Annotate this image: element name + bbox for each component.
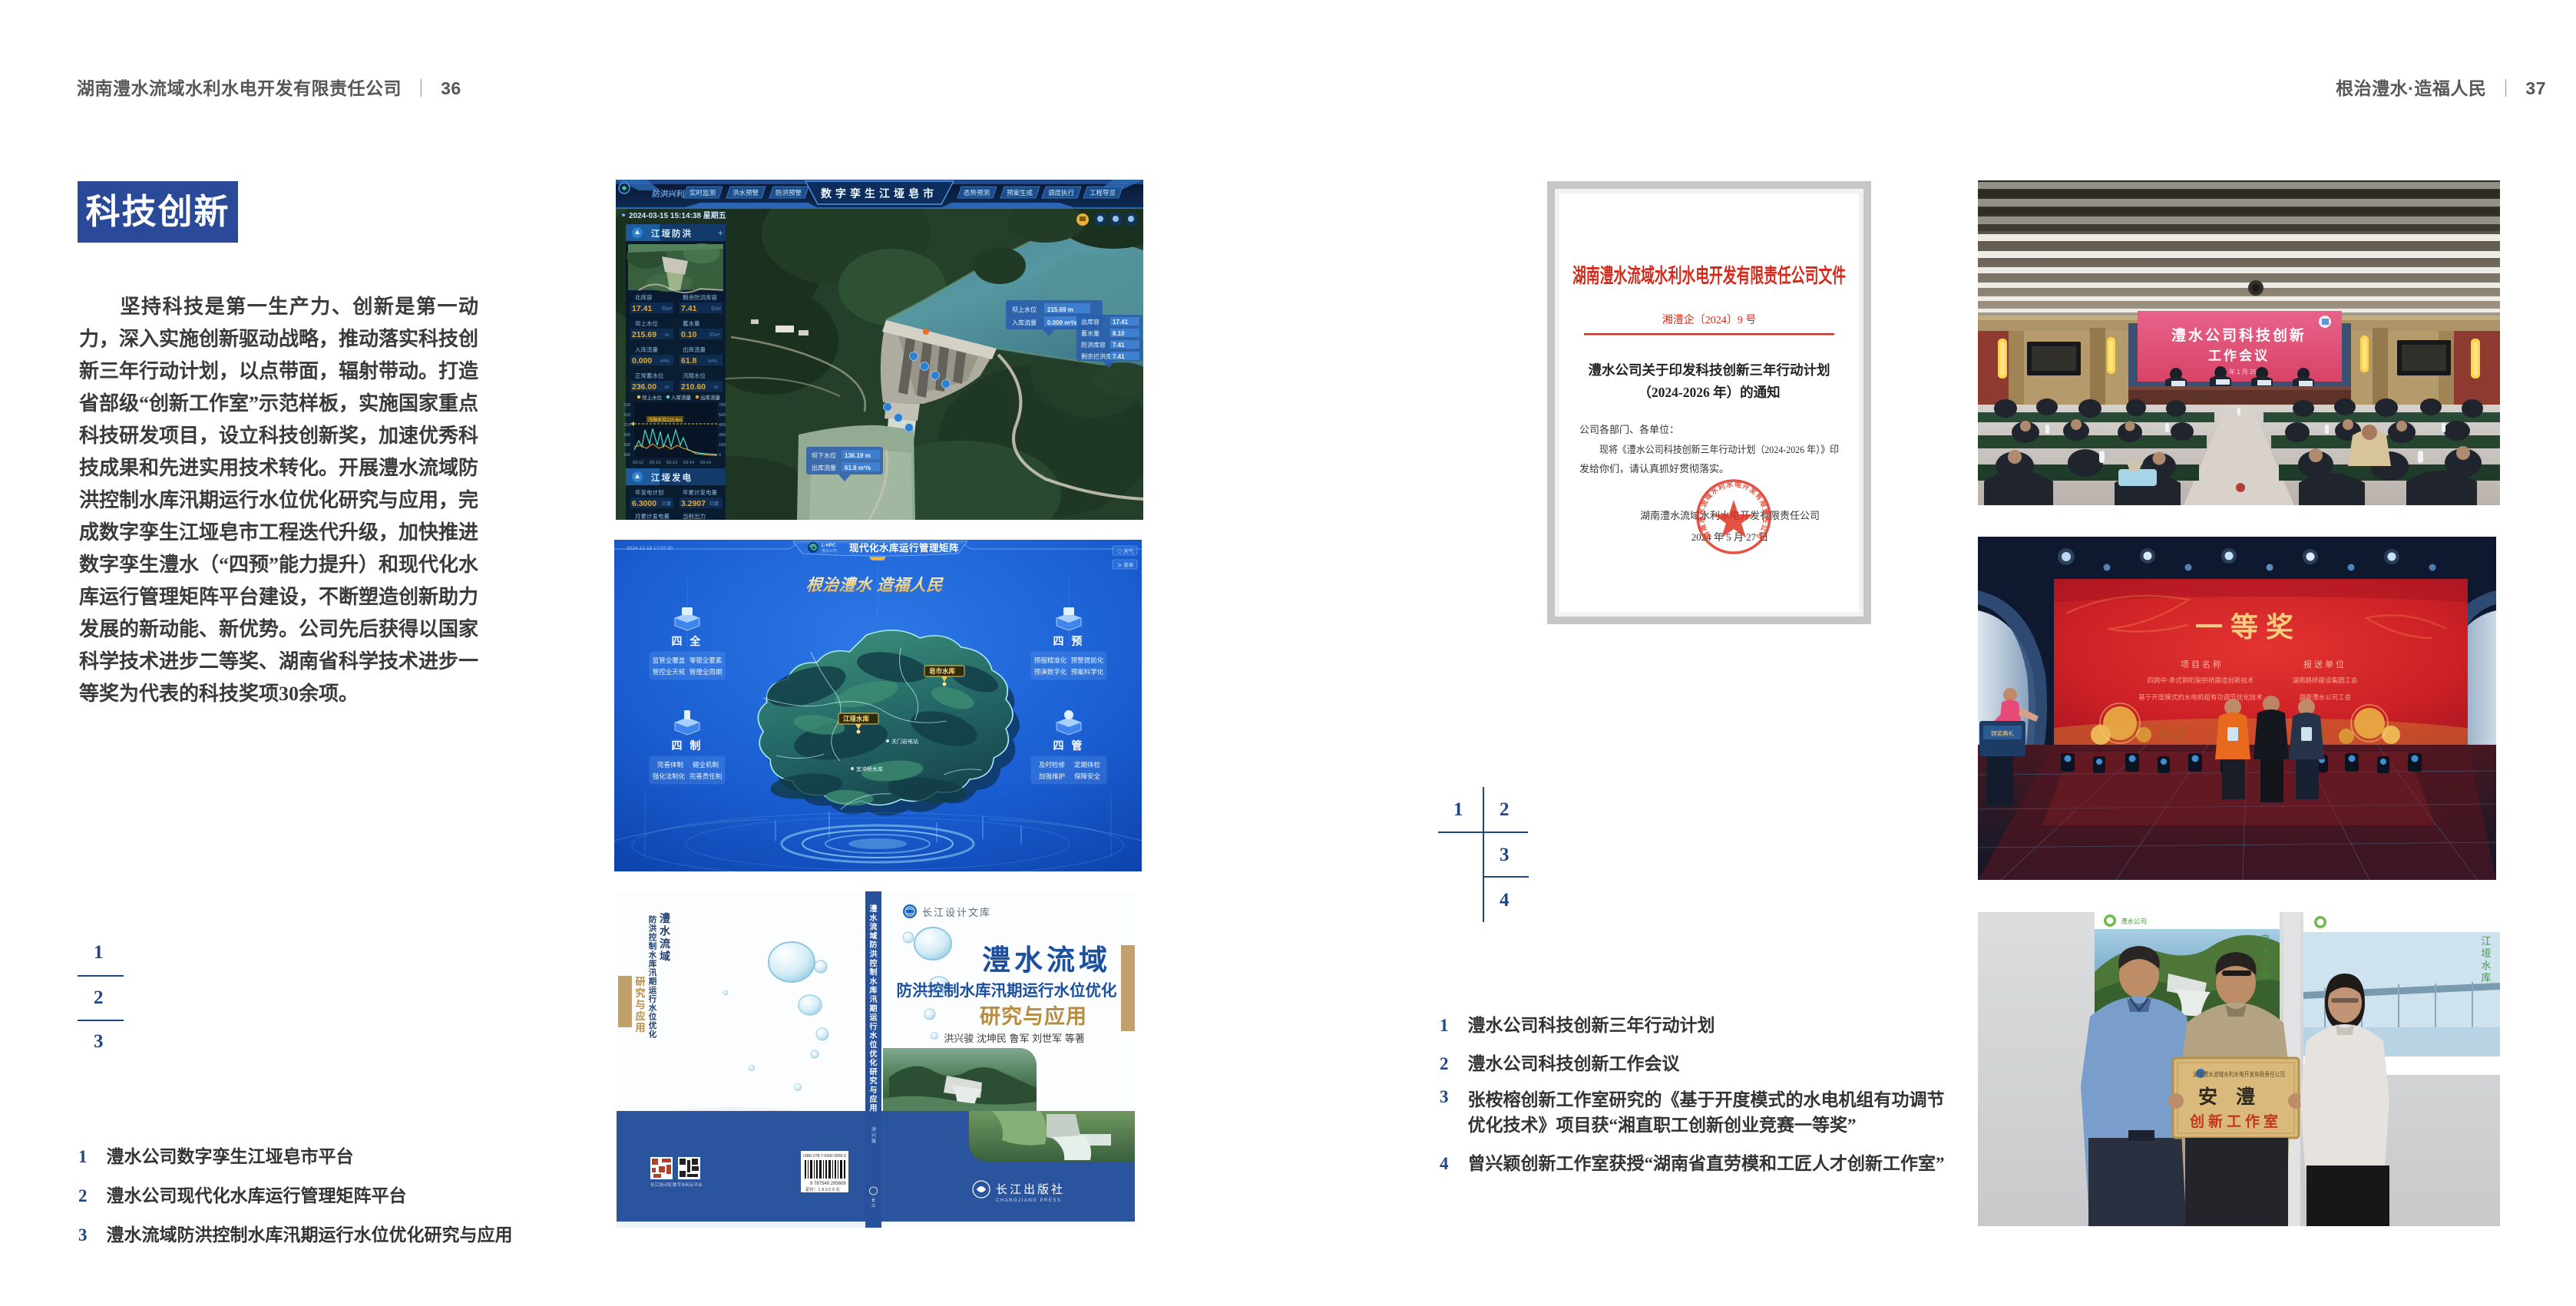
svg-text:亿m³: 亿m³ xyxy=(662,306,672,312)
svg-text:7.41: 7.41 xyxy=(1113,342,1125,349)
svg-text:及时检修: 及时检修 xyxy=(1039,761,1066,769)
svg-text:400: 400 xyxy=(719,423,726,428)
svg-text:正常蓄水位: 正常蓄水位 xyxy=(635,372,664,379)
svg-text:安澧: 安澧 xyxy=(2198,1086,2273,1108)
svg-text:3.2907: 3.2907 xyxy=(681,499,706,508)
svg-text:四 全: 四 全 xyxy=(672,635,703,647)
svg-text:江: 江 xyxy=(871,1203,875,1208)
svg-text:7.41: 7.41 xyxy=(1113,353,1125,360)
svg-text:报送单位: 报送单位 xyxy=(2303,659,2346,670)
svg-text:项目名称: 项目名称 xyxy=(2181,659,2224,670)
svg-text:+: + xyxy=(718,229,723,238)
svg-text:强化法制化: 强化法制化 xyxy=(653,772,686,780)
svg-text:湖南澧水流域水利水电开发有限责任公司: 湖南澧水流域水利水电开发有限责任公司 xyxy=(2193,1070,2285,1078)
svg-text:2024-12-18 17:07:30: 2024-12-18 17:07:30 xyxy=(627,546,673,551)
svg-text:210.60: 210.60 xyxy=(681,382,706,392)
svg-text:17.41: 17.41 xyxy=(632,304,652,313)
svg-text:m: m xyxy=(714,385,718,390)
svg-text:入库流量: 入库流量 xyxy=(671,394,692,401)
svg-text:监管全覆盖: 监管全覆盖 xyxy=(653,656,686,664)
svg-text:◇ 天气: ◇ 天气 xyxy=(1117,547,1134,554)
svg-text:136.19 m: 136.19 m xyxy=(845,452,871,459)
svg-text:江垭水库: 江垭水库 xyxy=(843,715,870,722)
svg-text:预警提前化: 预警提前化 xyxy=(1071,656,1104,664)
svg-text:500: 500 xyxy=(719,413,726,418)
svg-text:定期体检: 定期体检 xyxy=(1074,761,1101,769)
svg-text:215.69: 215.69 xyxy=(632,330,656,339)
svg-text:现将《澧水公司科技创新三年行动计划（2024-2026 年）: 现将《澧水公司科技创新三年行动计划（2024-2026 年）》印 xyxy=(1599,444,1839,455)
svg-text:防洪控制水库汛期运行水位优化: 防洪控制水库汛期运行水位优化 xyxy=(648,914,657,1040)
svg-text:现代化水库运行管理矩阵: 现代化水库运行管理矩阵 xyxy=(849,542,959,554)
svg-text:出库流量: 出库流量 xyxy=(700,394,721,401)
svg-text:湖南澧水流域水利水电开发有限责任公司文件: 湖南澧水流域水利水电开发有限责任公司文件 xyxy=(1572,264,1846,287)
svg-text:澧: 澧 xyxy=(1697,516,1706,524)
svg-text:坝上水位: 坝上水位 xyxy=(1012,306,1037,313)
svg-text:出库流量: 出库流量 xyxy=(683,346,706,353)
svg-text:L-HPC: L-HPC xyxy=(822,544,836,548)
svg-text:100: 100 xyxy=(719,443,726,448)
svg-text:03-13: 03-13 xyxy=(666,461,677,465)
svg-text:亿度: 亿度 xyxy=(662,501,671,507)
svg-text:一等奖: 一等奖 xyxy=(2195,612,2301,643)
svg-text:防洪预警: 防洪预警 xyxy=(775,189,802,197)
svg-text:公司各部门、各单位：: 公司各部门、各单位： xyxy=(1579,424,1679,435)
svg-text:研究与应用: 研究与应用 xyxy=(980,1004,1087,1028)
svg-text:亿m³: 亿m³ xyxy=(711,306,721,312)
svg-text:17.41: 17.41 xyxy=(1113,319,1129,326)
svg-text:防洪控制水库汛期运行水位优化: 防洪控制水库汛期运行水位优化 xyxy=(897,981,1117,1000)
svg-text:入库流量: 入库流量 xyxy=(635,346,658,353)
svg-text:根治澧水 造福人民: 根治澧水 造福人民 xyxy=(805,576,944,594)
svg-text:230: 230 xyxy=(623,403,630,408)
svg-text:190: 190 xyxy=(623,443,630,448)
svg-text:工作会议: 工作会议 xyxy=(2208,348,2270,363)
svg-text:0.000 m³/s: 0.000 m³/s xyxy=(1047,319,1077,326)
svg-text:江垭水库: 江垭水库 xyxy=(2481,935,2491,984)
svg-text:7.41: 7.41 xyxy=(681,304,697,313)
svg-text:江垭防洪: 江垭防洪 xyxy=(651,228,693,239)
svg-text:蓄水量: 蓄水量 xyxy=(1081,329,1100,337)
svg-text:管控全天候: 管控全天候 xyxy=(653,668,686,676)
svg-text:长江出版社: 长江出版社 xyxy=(996,1183,1065,1196)
svg-text:剩余防洪库容: 剩余防洪库容 xyxy=(683,293,717,301)
svg-text:皂市水库: 皂市水库 xyxy=(2260,934,2270,982)
svg-text:汛限水位210.6m: 汛限水位210.6m xyxy=(648,417,682,423)
svg-text:完善体制: 完善体制 xyxy=(657,761,683,769)
svg-text:北库容: 北库容 xyxy=(635,293,653,301)
svg-text:洪兴骏: 洪兴骏 xyxy=(871,1126,876,1144)
svg-text:210: 210 xyxy=(623,423,630,428)
svg-text:亿度: 亿度 xyxy=(709,501,719,507)
svg-text:四 预: 四 预 xyxy=(1053,635,1085,647)
svg-text:0.000: 0.000 xyxy=(632,356,652,365)
svg-text:江垭发电: 江垭发电 xyxy=(651,472,693,483)
svg-text:数字孪生江垭皂市: 数字孪生江垭皂市 xyxy=(821,187,937,200)
svg-text:皂市水库: 皂市水库 xyxy=(929,667,956,675)
svg-text:m³/s: m³/s xyxy=(660,359,670,364)
svg-text:0.10: 0.10 xyxy=(681,330,697,339)
svg-text:8.10: 8.10 xyxy=(1113,330,1125,337)
svg-text:任: 任 xyxy=(1761,515,1771,524)
svg-text:03-14: 03-14 xyxy=(683,461,694,465)
svg-text:61.8: 61.8 xyxy=(681,356,697,365)
svg-text:洪兴骏 沈坤民 鲁军 刘世军 等著: 洪兴骏 沈坤民 鲁军 刘世军 等著 xyxy=(944,1033,1084,1044)
svg-text:m³/s: m³/s xyxy=(708,359,717,364)
svg-text:m: m xyxy=(665,333,669,338)
svg-text:入库流量: 入库流量 xyxy=(1012,319,1037,326)
svg-text:长江设计院 数字水利云平台: 长江设计院 数字水利云平台 xyxy=(650,1182,703,1188)
svg-text:防洪库容: 防洪库容 xyxy=(1081,341,1106,349)
svg-text:年发电计划: 年发电计划 xyxy=(635,488,664,496)
svg-text:保障安全: 保障安全 xyxy=(1074,772,1101,780)
svg-text:坝下水位: 坝下水位 xyxy=(812,451,836,459)
svg-text:长: 长 xyxy=(871,1198,875,1203)
svg-text:年累计发电量: 年累计发电量 xyxy=(683,488,717,496)
svg-text:61.8 m³/s: 61.8 m³/s xyxy=(845,465,871,471)
svg-text:（2024-2026 年）的通知: （2024-2026 年）的通知 xyxy=(1638,385,1780,400)
svg-text:当前出力: 当前出力 xyxy=(683,512,706,520)
svg-text:220: 220 xyxy=(623,413,630,418)
svg-text:完善责任制: 完善责任制 xyxy=(689,772,723,780)
svg-text:预演数字化: 预演数字化 xyxy=(1034,668,1067,676)
svg-text:月累计发电量: 月累计发电量 xyxy=(635,512,670,520)
svg-text:预案科学化: 预案科学化 xyxy=(1071,668,1104,676)
svg-text:澧水公司: 澧水公司 xyxy=(2121,918,2147,925)
svg-text:定价：1 8 0.0 0 元: 定价：1 8 0.0 0 元 xyxy=(805,1186,840,1192)
svg-text:澧水公司: 澧水公司 xyxy=(822,548,837,554)
svg-text:关门岩电站: 关门岩电站 xyxy=(891,738,918,745)
svg-text:澧水流域: 澧水流域 xyxy=(982,944,1111,976)
svg-text:坝上水位: 坝上水位 xyxy=(635,319,658,327)
svg-text:健全机制: 健全机制 xyxy=(693,761,719,769)
svg-text:汛限水位: 汛限水位 xyxy=(683,372,706,379)
svg-text:实时监测: 实时监测 xyxy=(689,189,716,197)
svg-text:澧水流域: 澧水流域 xyxy=(660,912,671,963)
svg-text:预案生成: 预案生成 xyxy=(1007,189,1033,197)
svg-text:责: 责 xyxy=(1761,508,1771,516)
svg-text:03-13: 03-13 xyxy=(650,461,660,465)
svg-text:四跨中·承式钢桁架拱桥建造创新技术: 四跨中·承式钢桁架拱桥建造创新技术 xyxy=(2148,676,2254,684)
svg-text:电: 电 xyxy=(1734,480,1741,489)
svg-text:预报精准化: 预报精准化 xyxy=(1034,656,1067,664)
svg-text:m: m xyxy=(665,385,669,390)
svg-text:创新工作室: 创新工作室 xyxy=(2189,1113,2282,1130)
svg-text:300: 300 xyxy=(719,433,726,438)
svg-text:零银全要素: 零银全要素 xyxy=(689,656,723,664)
svg-text:四 制: 四 制 xyxy=(672,739,703,752)
svg-text:9 787549 295609: 9 787549 295609 xyxy=(810,1182,846,1186)
svg-text:调度执行: 调度执行 xyxy=(1048,189,1075,197)
svg-text:澧水公司关于印发科技创新三年行动计划: 澧水公司关于印发科技创新三年行动计划 xyxy=(1589,362,1830,378)
svg-text:6.3000: 6.3000 xyxy=(632,499,656,508)
svg-text:CHANGJIANG PRESS: CHANGJIANG PRESS xyxy=(996,1199,1061,1203)
svg-text:研究与应用: 研究与应用 xyxy=(634,976,645,1033)
svg-text:出库流量: 出库流量 xyxy=(812,464,836,471)
svg-text:长江设计文库: 长江设计文库 xyxy=(922,907,991,918)
svg-text:03-14: 03-14 xyxy=(700,461,711,465)
svg-text:澧水流域防洪控制水库汛期运行水位优化研究与应用: 澧水流域防洪控制水库汛期运行水位优化研究与应用 xyxy=(869,904,878,1113)
svg-text:ISBN 978-7-5492-9560-9: ISBN 978-7-5492-9560-9 xyxy=(803,1154,846,1159)
svg-text:洪水预警: 洪水预警 xyxy=(732,189,759,197)
svg-text:2024-03-15 15:14:38 星期五: 2024-03-15 15:14:38 星期五 xyxy=(629,210,726,220)
svg-text:215.69 m: 215.69 m xyxy=(1047,306,1073,313)
svg-text:宜冲桥水库: 宜冲桥水库 xyxy=(856,765,883,772)
svg-text:湖南路桥建设集团工会: 湖南路桥建设集团工会 xyxy=(2292,676,2358,684)
svg-text:700: 700 xyxy=(719,403,726,408)
svg-text:澧水公司科技创新: 澧水公司科技创新 xyxy=(2171,326,2306,344)
svg-text:≫ 菜单: ≫ 菜单 xyxy=(1117,561,1134,568)
svg-text:03-12: 03-12 xyxy=(633,461,643,465)
svg-text:0: 0 xyxy=(719,453,721,458)
svg-text:基于开度模式的水电机组有功调节优化技术: 基于开度模式的水电机组有功调节优化技术 xyxy=(2138,693,2263,701)
svg-text:200: 200 xyxy=(623,433,630,438)
svg-text:总库容: 总库容 xyxy=(1081,318,1100,326)
svg-text:湘澧企〔2024〕9 号: 湘澧企〔2024〕9 号 xyxy=(1662,313,1757,326)
svg-text:工程导览: 工程导览 xyxy=(1090,189,1116,197)
svg-text:加强维护: 加强维护 xyxy=(1039,772,1065,780)
svg-text:180: 180 xyxy=(623,453,630,458)
svg-text:颁奖典礼: 颁奖典礼 xyxy=(1991,729,2014,737)
svg-text:亿m³: 亿m³ xyxy=(709,332,719,338)
svg-text:蓄水量: 蓄水量 xyxy=(683,319,700,327)
svg-text:四 管: 四 管 xyxy=(1053,739,1085,752)
svg-text:态势预测: 态势预测 xyxy=(964,189,990,197)
svg-text:236.00: 236.00 xyxy=(632,382,656,392)
svg-text:管理全周期: 管理全周期 xyxy=(689,668,723,676)
svg-text:坝上水位: 坝上水位 xyxy=(642,394,663,401)
svg-text:发给你们，请认真抓好贯彻落实。: 发给你们，请认真抓好贯彻落实。 xyxy=(1579,463,1729,474)
